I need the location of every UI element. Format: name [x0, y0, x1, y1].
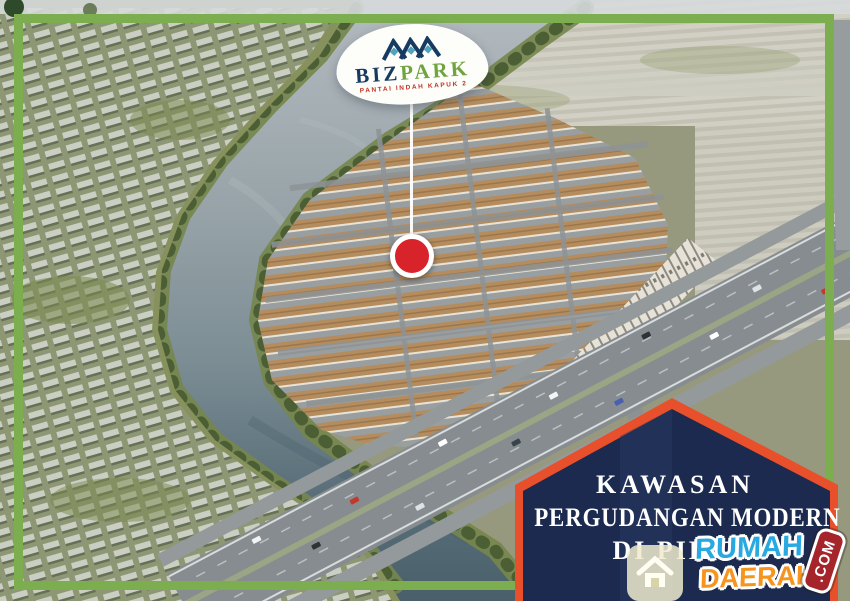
watermark: RUMAH DAERAH .COM: [600, 520, 850, 601]
watermark-daerah: DAERAH: [699, 560, 816, 595]
watermark-house-icon: [627, 545, 683, 601]
logo-text-biz: BIZ: [354, 61, 401, 88]
location-pin: [390, 234, 434, 278]
location-pointer-line: [410, 101, 413, 239]
promo-image: BIZPARK PANTAI INDAH KAPUK 2 KAWASAN PER…: [0, 0, 850, 601]
watermark-com-badge: .COM: [800, 526, 848, 596]
banner-line-1: KAWASAN: [515, 468, 835, 501]
